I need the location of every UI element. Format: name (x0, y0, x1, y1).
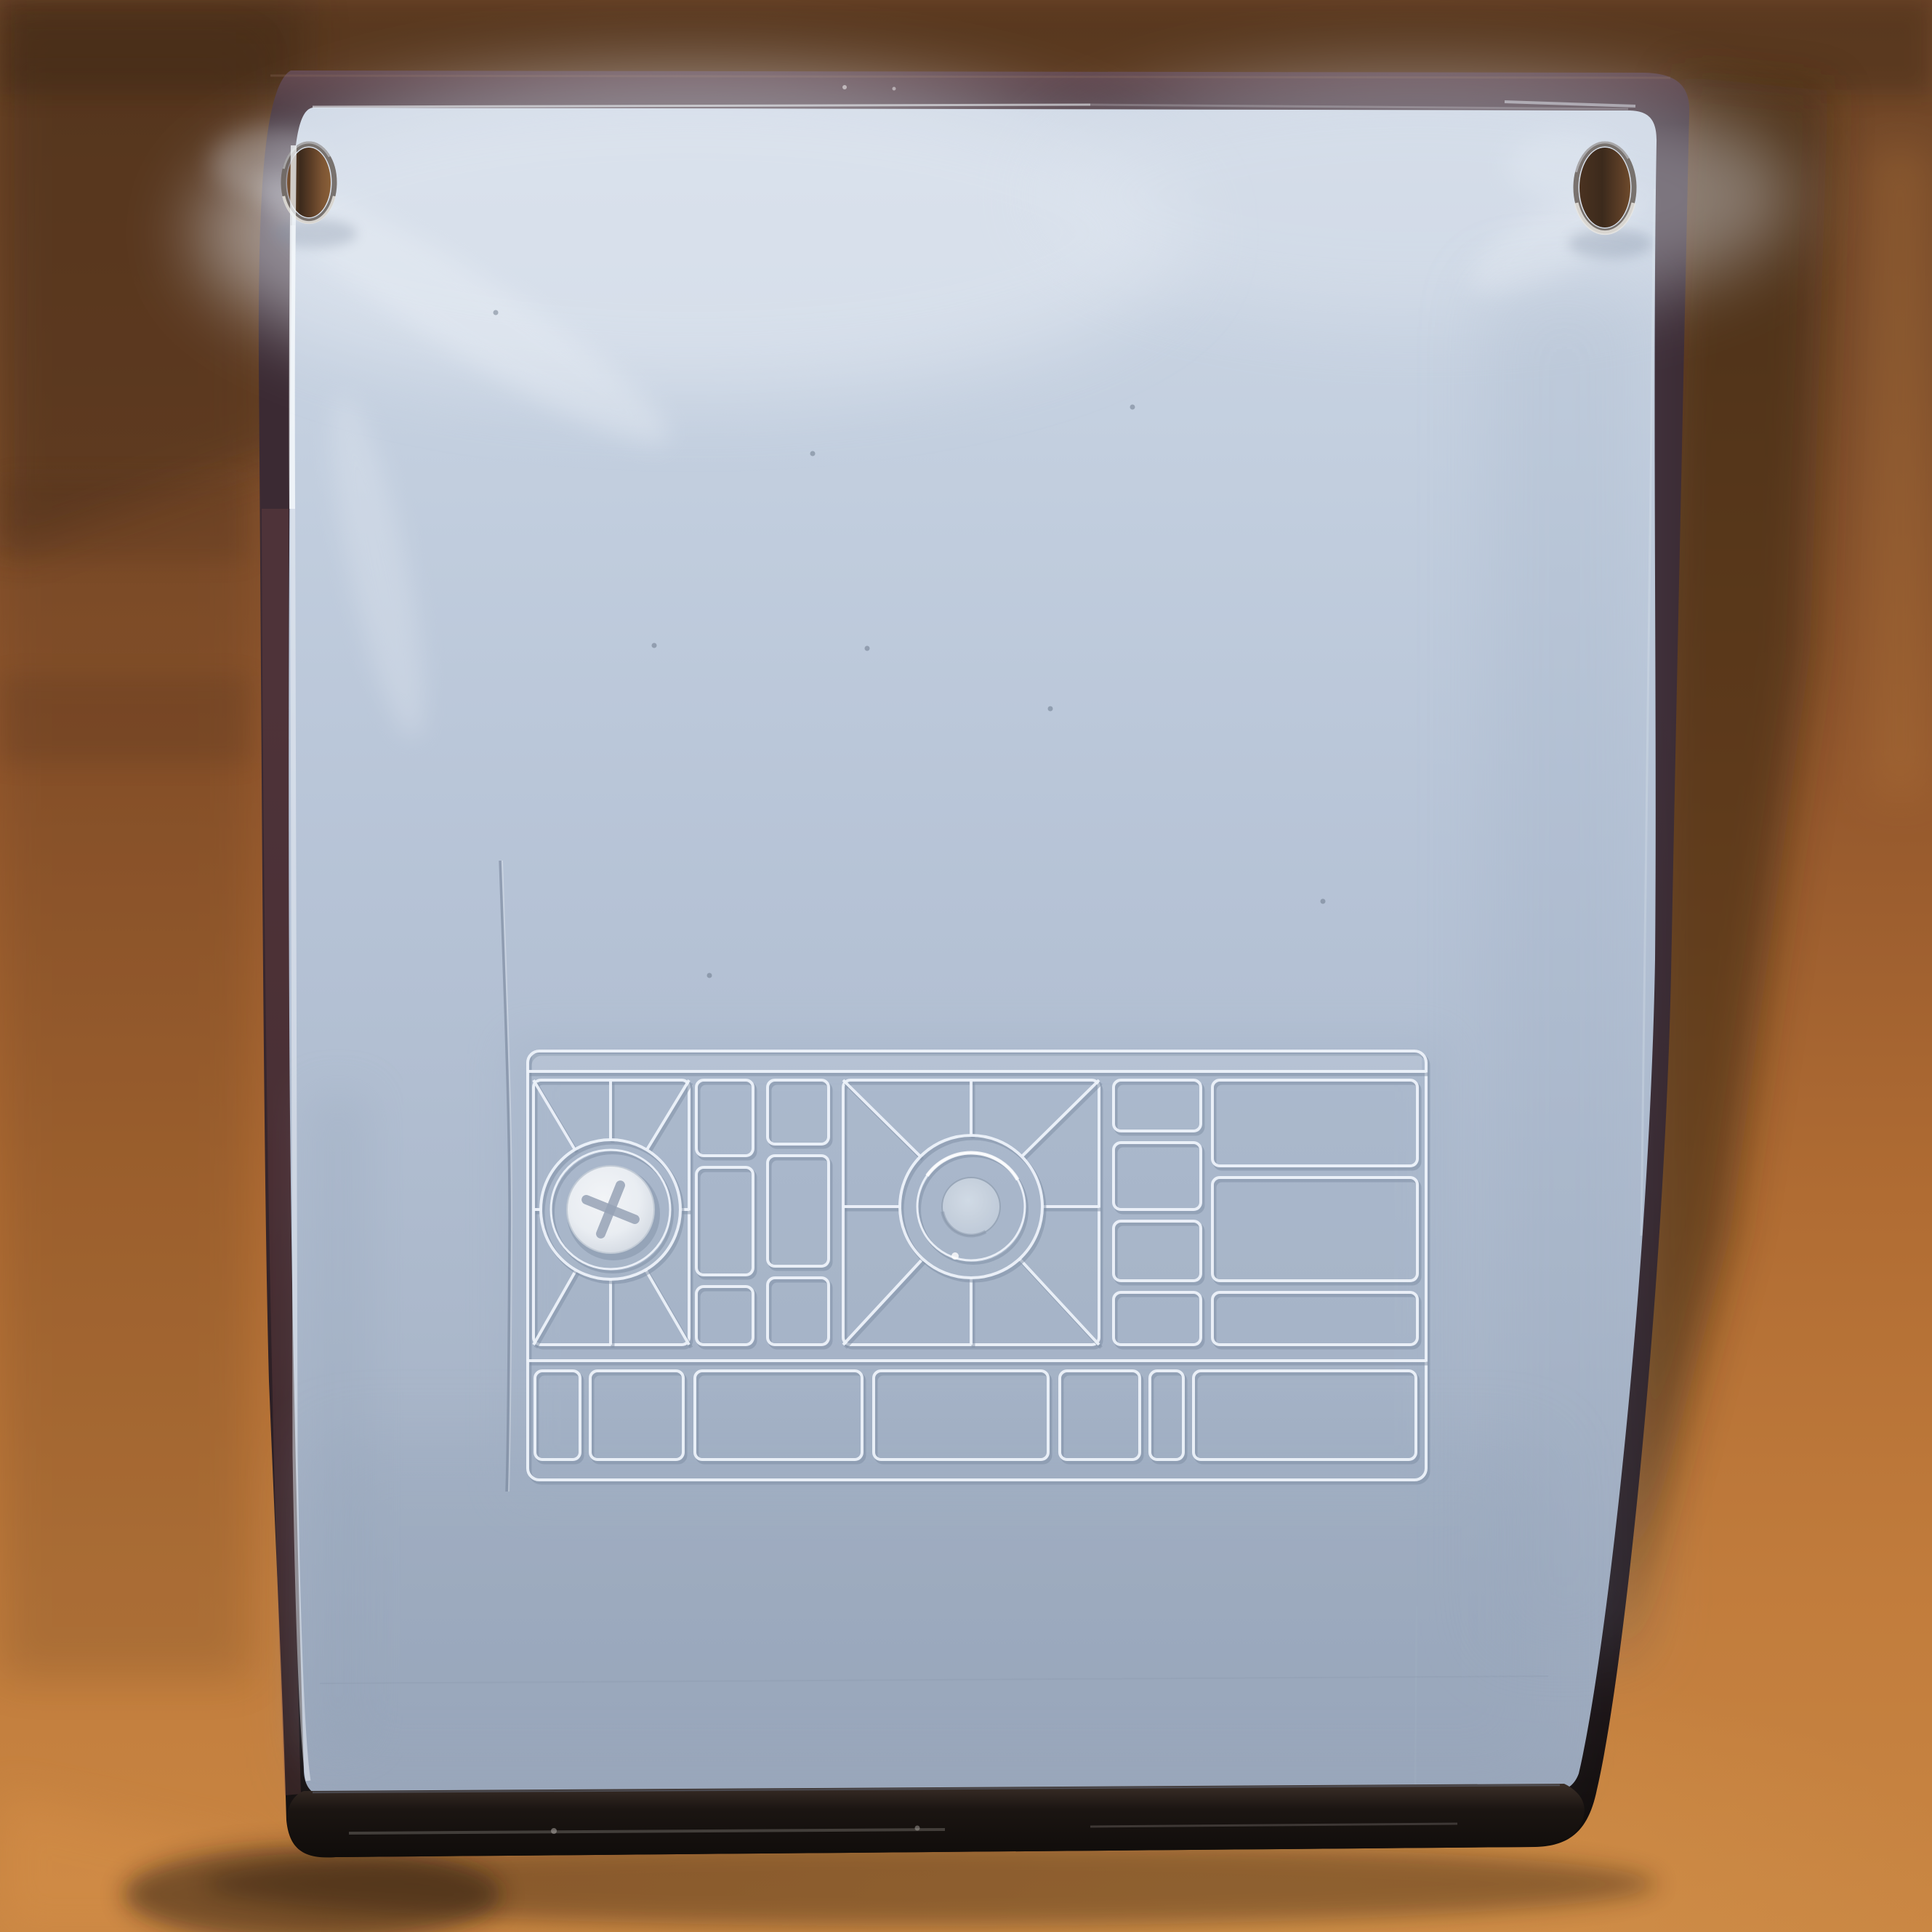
display-case (196, 71, 1795, 1857)
speck-1 (865, 646, 870, 651)
reflection-cloud-top-right (1039, 73, 1795, 320)
speck-3 (494, 310, 499, 315)
case-base (287, 1784, 1585, 1857)
speck-7 (707, 973, 712, 978)
panel-right-shading (1483, 276, 1646, 1657)
photo-of-plastic-case: Photograph: back of a clear plastic disp… (0, 0, 1932, 1932)
speck-4 (1130, 405, 1135, 410)
speck-5 (1321, 899, 1326, 904)
speck-0 (652, 643, 657, 648)
base-scuff-dot-1 (551, 1828, 557, 1834)
hole-interior (1579, 148, 1630, 228)
rim-glint-1 (842, 85, 847, 89)
speck-6 (810, 451, 816, 456)
shadow-band-left-2 (0, 676, 251, 763)
photo-canvas: Photograph: back of a clear plastic disp… (0, 0, 1932, 1932)
base-scuff-dot-2 (915, 1826, 920, 1831)
left-edge-highlight-bright (292, 145, 294, 509)
hole-dimple-shadow (273, 219, 357, 248)
shadow-band-left-1 (0, 480, 247, 560)
plate-top-band (532, 1054, 1422, 1071)
base-band (287, 1784, 1585, 1857)
light-band-far-right (1868, 145, 1932, 800)
shadow-left-side (0, 44, 251, 1679)
boss-glint (951, 1252, 959, 1260)
rim-glint-2 (893, 87, 896, 91)
speck-2 (1048, 707, 1053, 712)
panel-left-shading (305, 1090, 371, 1744)
